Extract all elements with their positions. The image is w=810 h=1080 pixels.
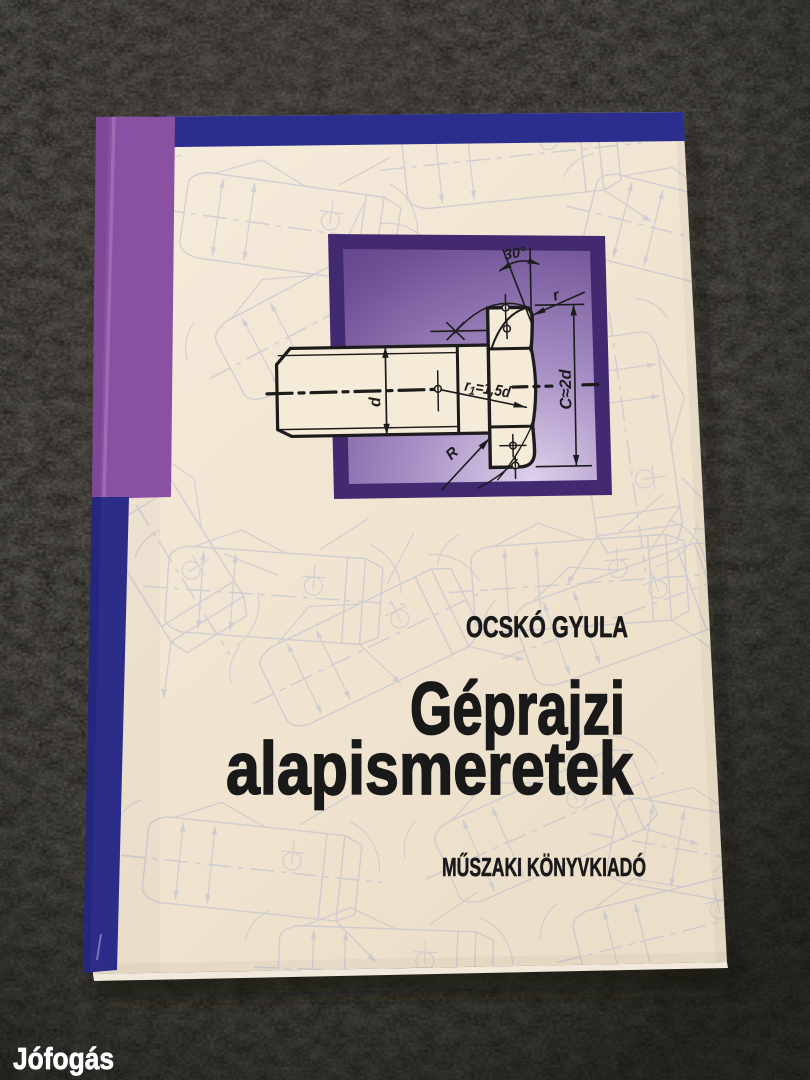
- svg-text:MŰSZAKI KÖNYVKIADÓ: MŰSZAKI KÖNYVKIADÓ: [442, 852, 646, 882]
- svg-text:d: d: [367, 396, 384, 407]
- svg-text:Jófogás: Jófogás: [13, 1041, 114, 1076]
- svg-text:alapismeretek: alapismeretek: [226, 727, 634, 810]
- svg-text:OCSKÓ GYULA: OCSKÓ GYULA: [466, 610, 628, 644]
- svg-text:30°: 30°: [503, 244, 527, 263]
- svg-text:C≈2d: C≈2d: [557, 368, 576, 409]
